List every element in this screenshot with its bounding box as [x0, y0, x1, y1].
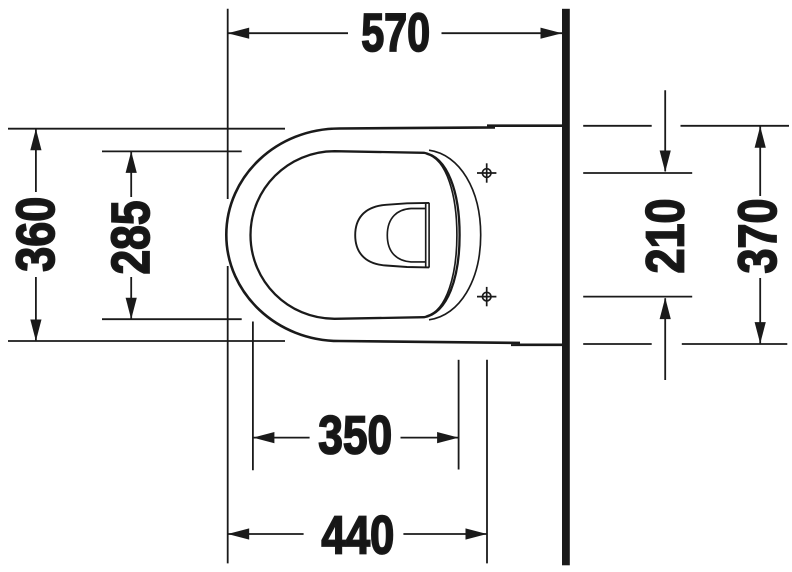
svg-text:370: 370	[728, 199, 788, 274]
svg-text:570: 570	[361, 3, 430, 63]
svg-text:440: 440	[321, 505, 394, 565]
svg-text:350: 350	[318, 406, 392, 466]
svg-text:285: 285	[101, 201, 161, 275]
svg-text:360: 360	[6, 197, 66, 272]
svg-text:210: 210	[636, 199, 696, 274]
